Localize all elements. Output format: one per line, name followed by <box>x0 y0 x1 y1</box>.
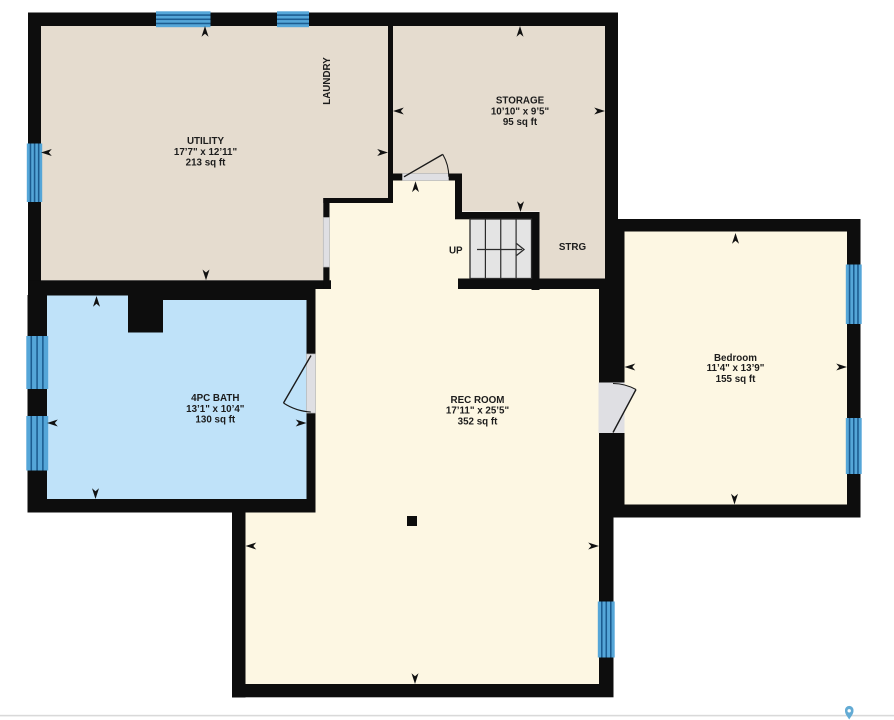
svg-text:213 sq ft: 213 sq ft <box>186 158 226 169</box>
svg-text:10’10" x 9’5": 10’10" x 9’5" <box>491 106 549 117</box>
svg-text:130 sq ft: 130 sq ft <box>195 415 235 426</box>
svg-text:155 sq ft: 155 sq ft <box>716 374 756 385</box>
svg-text:STORAGE: STORAGE <box>496 96 545 107</box>
svg-text:4PC BATH: 4PC BATH <box>191 393 239 404</box>
svg-text:352 sq ft: 352 sq ft <box>458 416 498 427</box>
svg-text:UTILITY: UTILITY <box>187 136 224 147</box>
svg-text:17’7" x 12’11": 17’7" x 12’11" <box>174 147 237 158</box>
svg-text:13’1" x 10’4": 13’1" x 10’4" <box>186 404 244 415</box>
svg-text:95 sq ft: 95 sq ft <box>503 117 538 128</box>
svg-text:11’4" x 13’9": 11’4" x 13’9" <box>707 363 765 374</box>
svg-text:STRG: STRG <box>559 242 587 253</box>
svg-text:17’11" x 25’5": 17’11" x 25’5" <box>446 406 509 417</box>
svg-text:LAUNDRY: LAUNDRY <box>322 57 333 105</box>
svg-text:REC ROOM: REC ROOM <box>451 395 505 406</box>
svg-text:UP: UP <box>449 246 463 257</box>
svg-text:Bedroom: Bedroom <box>714 353 757 364</box>
